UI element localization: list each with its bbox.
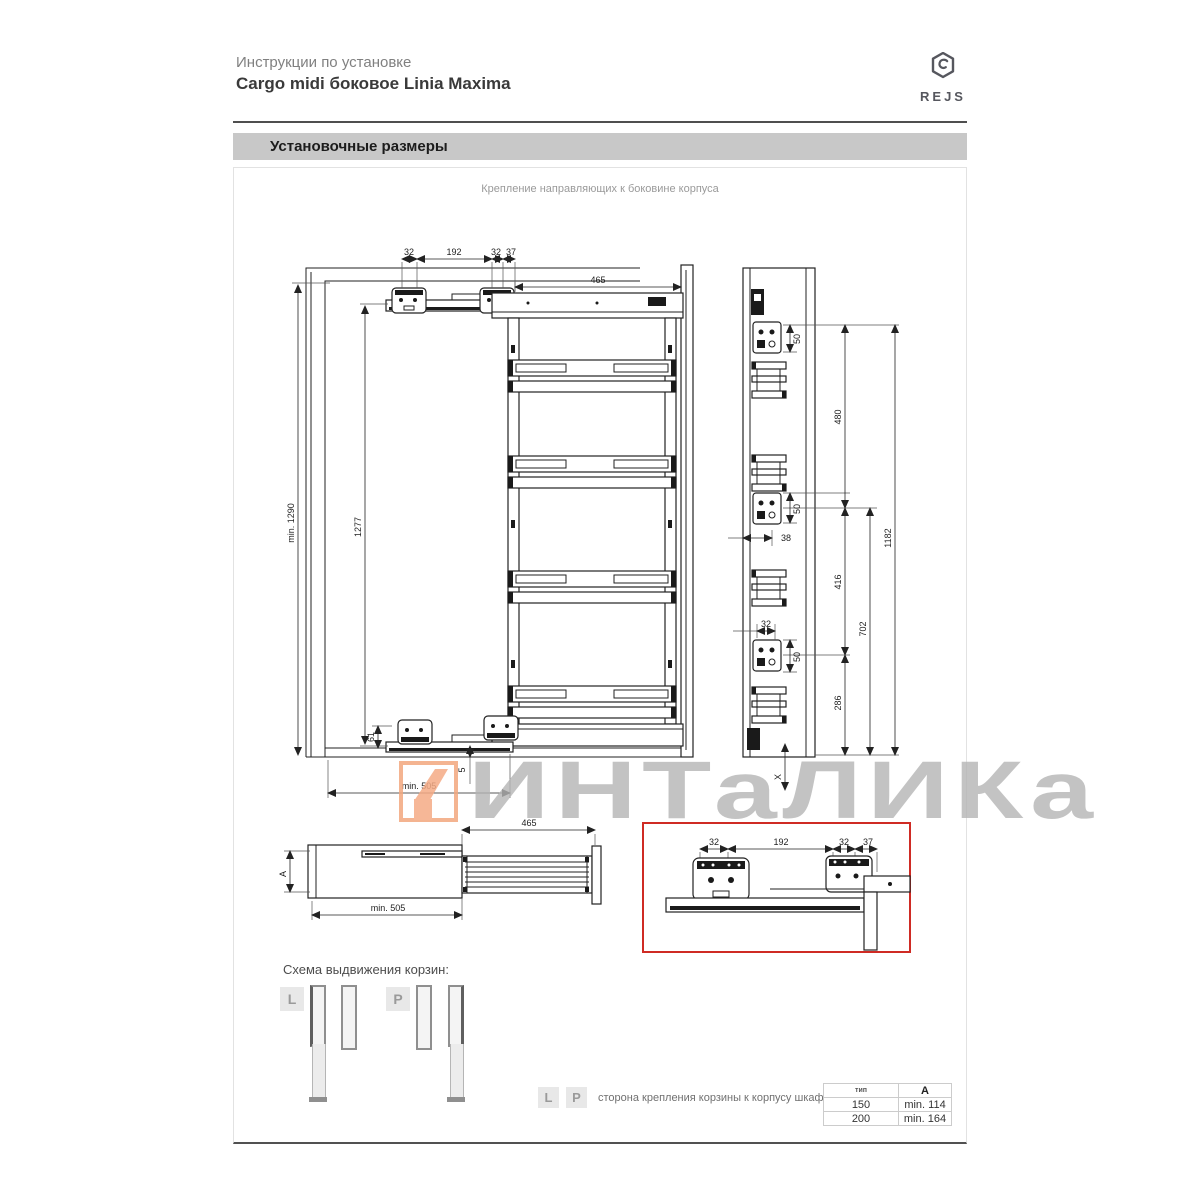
legend-label-l: L <box>538 1087 559 1108</box>
schema-l-bar-closed <box>341 985 357 1050</box>
dim-side-416: 416 <box>833 574 843 589</box>
dim-top-32b: 32 <box>491 247 501 257</box>
dim-detail-37: 37 <box>863 837 873 847</box>
dim-width-465: 465 <box>590 275 605 285</box>
schema-l-bar-extension <box>312 1044 326 1098</box>
dim-bottom-5: 5 <box>457 767 467 772</box>
size-table-cell: min. 114 <box>899 1098 952 1112</box>
instruction-page: Инструкции по установке Cargo midi боков… <box>0 0 1200 1200</box>
schema-p-bar-extended <box>448 985 464 1047</box>
size-table-cell: min. 164 <box>899 1112 952 1126</box>
size-table-cell: 150 <box>824 1098 899 1112</box>
dim-height-min: min. 1290 <box>286 503 296 543</box>
section-title: Установочные размеры <box>233 133 448 160</box>
dim-top-37: 37 <box>506 247 516 257</box>
schema-heading: Схема выдвижения корзин: <box>283 962 449 977</box>
dim-pull-a: A <box>278 871 288 877</box>
intalika-watermark-text: ИНТаЛИКа <box>468 750 1099 832</box>
dim-side-50-top: 50 <box>792 334 802 344</box>
size-table-row: 200 min. 164 <box>824 1112 952 1126</box>
side-bracket-mid <box>753 493 781 524</box>
dim-side-1182: 1182 <box>883 528 893 547</box>
dim-side-38: 38 <box>781 533 791 543</box>
schema-l-bar-cap <box>309 1097 327 1102</box>
size-table-header-type: тип <box>824 1084 899 1098</box>
legend-text: сторона крепления корзины к корпусу шкаф… <box>598 1092 830 1104</box>
dim-side-480: 480 <box>833 409 843 424</box>
side-view-drawing: 50 480 50 38 416 32 50 286 702 1182 X <box>728 268 899 790</box>
intalika-watermark-icon <box>399 761 458 822</box>
schema-label-p: P <box>386 987 410 1011</box>
size-table-header-a: A <box>899 1084 952 1098</box>
schema-label-l: L <box>280 987 304 1011</box>
rejs-logo: REJS <box>918 52 968 104</box>
header-divider <box>233 121 967 123</box>
schema-l-bar-extended <box>310 985 326 1047</box>
dim-side-286: 286 <box>833 695 843 710</box>
schema-p-bar-cap <box>447 1097 465 1102</box>
dim-side-50-bottom: 50 <box>792 652 802 662</box>
size-table-header-row: тип A <box>824 1084 952 1098</box>
page-title: Cargo midi боковое Linia Maxima <box>236 74 511 94</box>
dim-top-32a: 32 <box>404 247 414 257</box>
size-table-row: 150 min. 114 <box>824 1098 952 1112</box>
dim-side-702: 702 <box>858 621 868 636</box>
schema-p-bar-extension <box>450 1044 464 1098</box>
schema-p-bar-closed <box>416 985 432 1050</box>
side-bracket-top <box>753 322 781 353</box>
rejs-logo-text: REJS <box>918 89 968 104</box>
dim-bottom-61: 61 <box>366 732 376 742</box>
dim-rail-1277: 1277 <box>353 517 363 537</box>
dim-side-32: 32 <box>761 619 771 629</box>
side-bracket-bottom <box>753 640 781 671</box>
dim-detail-192: 192 <box>773 837 788 847</box>
dim-detail-32b: 32 <box>839 837 849 847</box>
dim-detail-32a: 32 <box>709 837 719 847</box>
size-table: тип A 150 min. 114 200 min. 164 <box>823 1083 952 1126</box>
dim-pull-min505: min. 505 <box>371 903 406 913</box>
detail-box-drawing: 32 192 32 37 <box>643 823 910 952</box>
dim-top-192: 192 <box>446 247 461 257</box>
section-header-bar: Установочные размеры <box>233 133 967 160</box>
size-table-cell: 200 <box>824 1112 899 1126</box>
dim-side-50-mid: 50 <box>792 504 802 514</box>
front-view-drawing: 32 192 32 37 465 min. 1290 1277 61 5 min… <box>286 247 693 798</box>
rejs-logo-icon <box>930 52 956 82</box>
doc-subtitle: Инструкции по установке <box>236 54 411 71</box>
legend-label-p: P <box>566 1087 587 1108</box>
